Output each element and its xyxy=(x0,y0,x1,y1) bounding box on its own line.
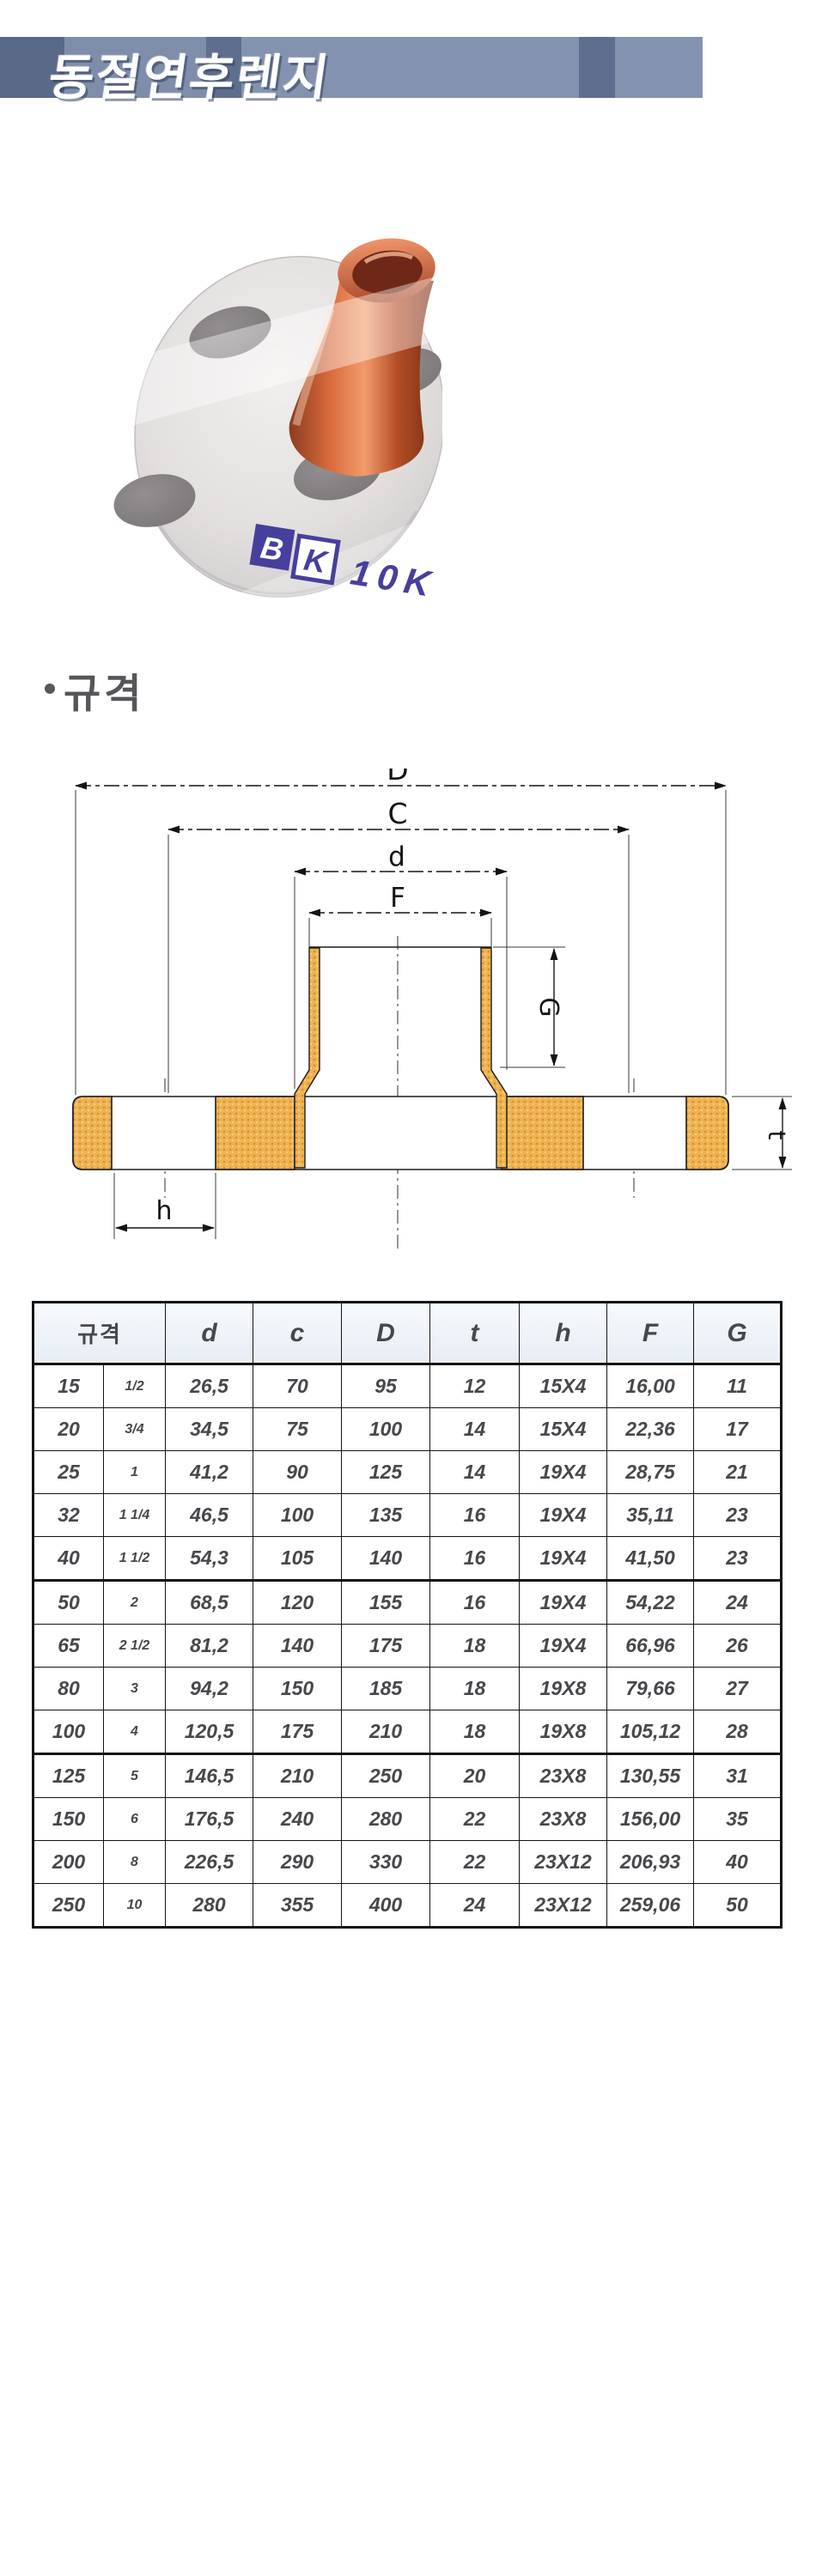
cell-value: 66,96 xyxy=(607,1625,694,1668)
table-row: 80394,21501851819X879,6627 xyxy=(33,1668,782,1710)
cell-value: 46,5 xyxy=(166,1494,253,1537)
title-bar: 동절연후렌지 xyxy=(0,37,703,98)
cell-value: 26,5 xyxy=(166,1364,253,1408)
cell-value: 95 xyxy=(342,1364,430,1408)
cell-value: 21 xyxy=(694,1451,782,1494)
cell-size-mm: 100 xyxy=(33,1710,104,1754)
flange-section xyxy=(73,947,728,1170)
table-row: 321 1/446,51001351619X435,1123 xyxy=(33,1494,782,1537)
header-col: d xyxy=(166,1303,253,1364)
cell-value: 19X8 xyxy=(520,1710,607,1754)
dim-label-d: d xyxy=(388,841,405,872)
cell-size-mm: 25 xyxy=(33,1451,104,1494)
section-header: 규격 xyxy=(45,671,144,716)
cell-value: 28 xyxy=(694,1710,782,1754)
header-col: c xyxy=(253,1303,342,1364)
table-row: 250102803554002423X12259,0650 xyxy=(33,1884,782,1928)
header-col: F xyxy=(607,1303,694,1364)
cell-value: 150 xyxy=(253,1668,342,1710)
cell-value: 175 xyxy=(253,1710,342,1754)
cell-size-mm: 15 xyxy=(33,1364,104,1408)
cell-value: 24 xyxy=(694,1581,782,1625)
table-row: 1004120,51752101819X8105,1228 xyxy=(33,1710,782,1754)
cell-size-mm: 125 xyxy=(33,1754,104,1798)
cell-value: 41,2 xyxy=(166,1451,253,1494)
cell-value: 12 xyxy=(430,1364,520,1408)
cell-value: 23X12 xyxy=(520,1884,607,1928)
cell-value: 120 xyxy=(253,1581,342,1625)
cell-value: 54,3 xyxy=(166,1537,253,1581)
cell-value: 31 xyxy=(694,1754,782,1798)
cell-value: 105,12 xyxy=(607,1710,694,1754)
cell-value: 15X4 xyxy=(520,1408,607,1451)
cell-value: 68,5 xyxy=(166,1581,253,1625)
cell-value: 94,2 xyxy=(166,1668,253,1710)
table-row: 1255146,52102502023X8130,5531 xyxy=(33,1754,782,1798)
cell-value: 330 xyxy=(342,1841,430,1884)
cell-value: 35 xyxy=(694,1798,782,1841)
cell-value: 100 xyxy=(253,1494,342,1537)
table-row: 1506176,52402802223X8156,0035 xyxy=(33,1798,782,1841)
dim-label-t: t xyxy=(763,1131,791,1140)
cell-value: 400 xyxy=(342,1884,430,1928)
cell-value: 23X8 xyxy=(520,1798,607,1841)
cell-value: 259,06 xyxy=(607,1884,694,1928)
cell-value: 176,5 xyxy=(166,1798,253,1841)
table-row: 203/434,5751001415X422,3617 xyxy=(33,1408,782,1451)
cell-value: 206,93 xyxy=(607,1841,694,1884)
table-row: 401 1/254,31051401619X441,5023 xyxy=(33,1537,782,1581)
page-title: 동절연후렌지 xyxy=(45,39,335,109)
cell-value: 210 xyxy=(253,1754,342,1798)
cell-size-mm: 32 xyxy=(33,1494,104,1537)
dim-label-C: C xyxy=(387,797,407,830)
cell-value: 40 xyxy=(694,1841,782,1884)
cell-size-inch: 3 xyxy=(104,1668,166,1710)
gold-block xyxy=(502,1097,583,1170)
cell-size-inch: 6 xyxy=(104,1798,166,1841)
cell-value: 16 xyxy=(430,1494,520,1537)
cell-value: 19X4 xyxy=(520,1451,607,1494)
catalog-page: 동절연후렌지 xyxy=(0,0,816,2576)
cell-size-mm: 40 xyxy=(33,1537,104,1581)
cell-value: 34,5 xyxy=(166,1408,253,1451)
table-row: 2008226,52903302223X12206,9340 xyxy=(33,1841,782,1884)
cell-size-mm: 20 xyxy=(33,1408,104,1451)
cell-value: 19X4 xyxy=(520,1581,607,1625)
cell-value: 280 xyxy=(342,1798,430,1841)
dim-label-F: F xyxy=(390,883,405,914)
header-col: t xyxy=(430,1303,520,1364)
cell-size-inch: 2 xyxy=(104,1581,166,1625)
cell-value: 41,50 xyxy=(607,1537,694,1581)
cell-value: 156,00 xyxy=(607,1798,694,1841)
table-row: 652 1/281,21401751819X466,9626 xyxy=(33,1625,782,1668)
cell-value: 14 xyxy=(430,1408,520,1451)
gold-block xyxy=(73,1097,112,1170)
section-title: 규격 xyxy=(64,671,144,716)
cell-size-mm: 80 xyxy=(33,1668,104,1710)
table-row: 50268,51201551619X454,2224 xyxy=(33,1581,782,1625)
cell-value: 146,5 xyxy=(166,1754,253,1798)
cell-value: 23 xyxy=(694,1537,782,1581)
cell-value: 155 xyxy=(342,1581,430,1625)
cell-value: 79,66 xyxy=(607,1668,694,1710)
cell-size-mm: 50 xyxy=(33,1581,104,1625)
cell-value: 140 xyxy=(342,1537,430,1581)
cell-size-inch: 1 xyxy=(104,1451,166,1494)
table-row: 151/226,570951215X416,0011 xyxy=(33,1364,782,1408)
cell-value: 18 xyxy=(430,1668,520,1710)
cell-value: 11 xyxy=(694,1364,782,1408)
cell-value: 125 xyxy=(342,1451,430,1494)
cell-value: 28,75 xyxy=(607,1451,694,1494)
cell-value: 19X4 xyxy=(520,1537,607,1581)
cell-value: 130,55 xyxy=(607,1754,694,1798)
cell-value: 20 xyxy=(430,1754,520,1798)
cell-value: 17 xyxy=(694,1408,782,1451)
dim-label-D: D xyxy=(387,769,408,787)
cell-value: 175 xyxy=(342,1625,430,1668)
header-col: D xyxy=(342,1303,430,1364)
cell-size-mm: 200 xyxy=(33,1841,104,1884)
cell-value: 14 xyxy=(430,1451,520,1494)
dimension-diagram: D C d F G t h xyxy=(26,769,799,1249)
cell-value: 19X4 xyxy=(520,1494,607,1537)
titlebar-segment xyxy=(615,37,703,98)
dim-label-G: G xyxy=(533,997,563,1017)
header-row: 규격 dcDthFG xyxy=(33,1303,782,1364)
titlebar-segment xyxy=(579,37,615,98)
cell-size-inch: 3/4 xyxy=(104,1408,166,1451)
cell-value: 280 xyxy=(166,1884,253,1928)
cell-size-mm: 150 xyxy=(33,1798,104,1841)
cell-value: 120,5 xyxy=(166,1710,253,1754)
cell-value: 24 xyxy=(430,1884,520,1928)
cell-value: 54,22 xyxy=(607,1581,694,1625)
cell-value: 90 xyxy=(253,1451,342,1494)
cell-value: 23X12 xyxy=(520,1841,607,1884)
cell-value: 100 xyxy=(342,1408,430,1451)
dim-label-h: h xyxy=(155,1196,172,1226)
cell-value: 22,36 xyxy=(607,1408,694,1451)
cell-value: 23X8 xyxy=(520,1754,607,1798)
cell-value: 19X8 xyxy=(520,1668,607,1710)
cell-value: 185 xyxy=(342,1668,430,1710)
spec-table-body: 151/226,570951215X416,0011203/434,575100… xyxy=(33,1364,782,1928)
cell-size-inch: 2 1/2 xyxy=(104,1625,166,1668)
cell-value: 18 xyxy=(430,1710,520,1754)
cell-size-inch: 4 xyxy=(104,1710,166,1754)
cell-value: 15X4 xyxy=(520,1364,607,1408)
product-photo: B K 10K 20 xyxy=(73,228,442,618)
cell-size-inch: 1 1/4 xyxy=(104,1494,166,1537)
cell-size-inch: 1/2 xyxy=(104,1364,166,1408)
cell-value: 250 xyxy=(342,1754,430,1798)
cell-value: 210 xyxy=(342,1710,430,1754)
cell-value: 50 xyxy=(694,1884,782,1928)
cell-value: 35,11 xyxy=(607,1494,694,1537)
cell-size-mm: 65 xyxy=(33,1625,104,1668)
header-size: 규격 xyxy=(33,1303,166,1364)
cell-value: 105 xyxy=(253,1537,342,1581)
cell-value: 26 xyxy=(694,1625,782,1668)
cell-value: 75 xyxy=(253,1408,342,1451)
cell-value: 19X4 xyxy=(520,1625,607,1668)
cell-value: 22 xyxy=(430,1841,520,1884)
cell-value: 18 xyxy=(430,1625,520,1668)
cell-value: 22 xyxy=(430,1798,520,1841)
bullet-icon xyxy=(45,683,55,694)
cell-size-inch: 1 1/2 xyxy=(104,1537,166,1581)
cell-value: 240 xyxy=(253,1798,342,1841)
header-col: G xyxy=(694,1303,782,1364)
cell-size-inch: 10 xyxy=(104,1884,166,1928)
cell-size-mm: 250 xyxy=(33,1884,104,1928)
table-row: 25141,2901251419X428,7521 xyxy=(33,1451,782,1494)
cell-value: 16 xyxy=(430,1581,520,1625)
cell-value: 355 xyxy=(253,1884,342,1928)
cell-value: 23 xyxy=(694,1494,782,1537)
cell-value: 16,00 xyxy=(607,1364,694,1408)
cell-value: 290 xyxy=(253,1841,342,1884)
gold-block xyxy=(686,1097,728,1170)
gold-block xyxy=(216,1097,295,1170)
cell-value: 27 xyxy=(694,1668,782,1710)
cell-value: 16 xyxy=(430,1537,520,1581)
cell-value: 81,2 xyxy=(166,1625,253,1668)
cell-value: 226,5 xyxy=(166,1841,253,1884)
cell-size-inch: 5 xyxy=(104,1754,166,1798)
cell-size-inch: 8 xyxy=(104,1841,166,1884)
spec-table-wrap: 규격 dcDthFG 151/226,570951215X416,0011203… xyxy=(32,1301,780,1929)
header-col: h xyxy=(520,1303,607,1364)
cell-value: 70 xyxy=(253,1364,342,1408)
spec-table: 규격 dcDthFG 151/226,570951215X416,0011203… xyxy=(32,1301,783,1929)
cell-value: 140 xyxy=(253,1625,342,1668)
cell-value: 135 xyxy=(342,1494,430,1537)
